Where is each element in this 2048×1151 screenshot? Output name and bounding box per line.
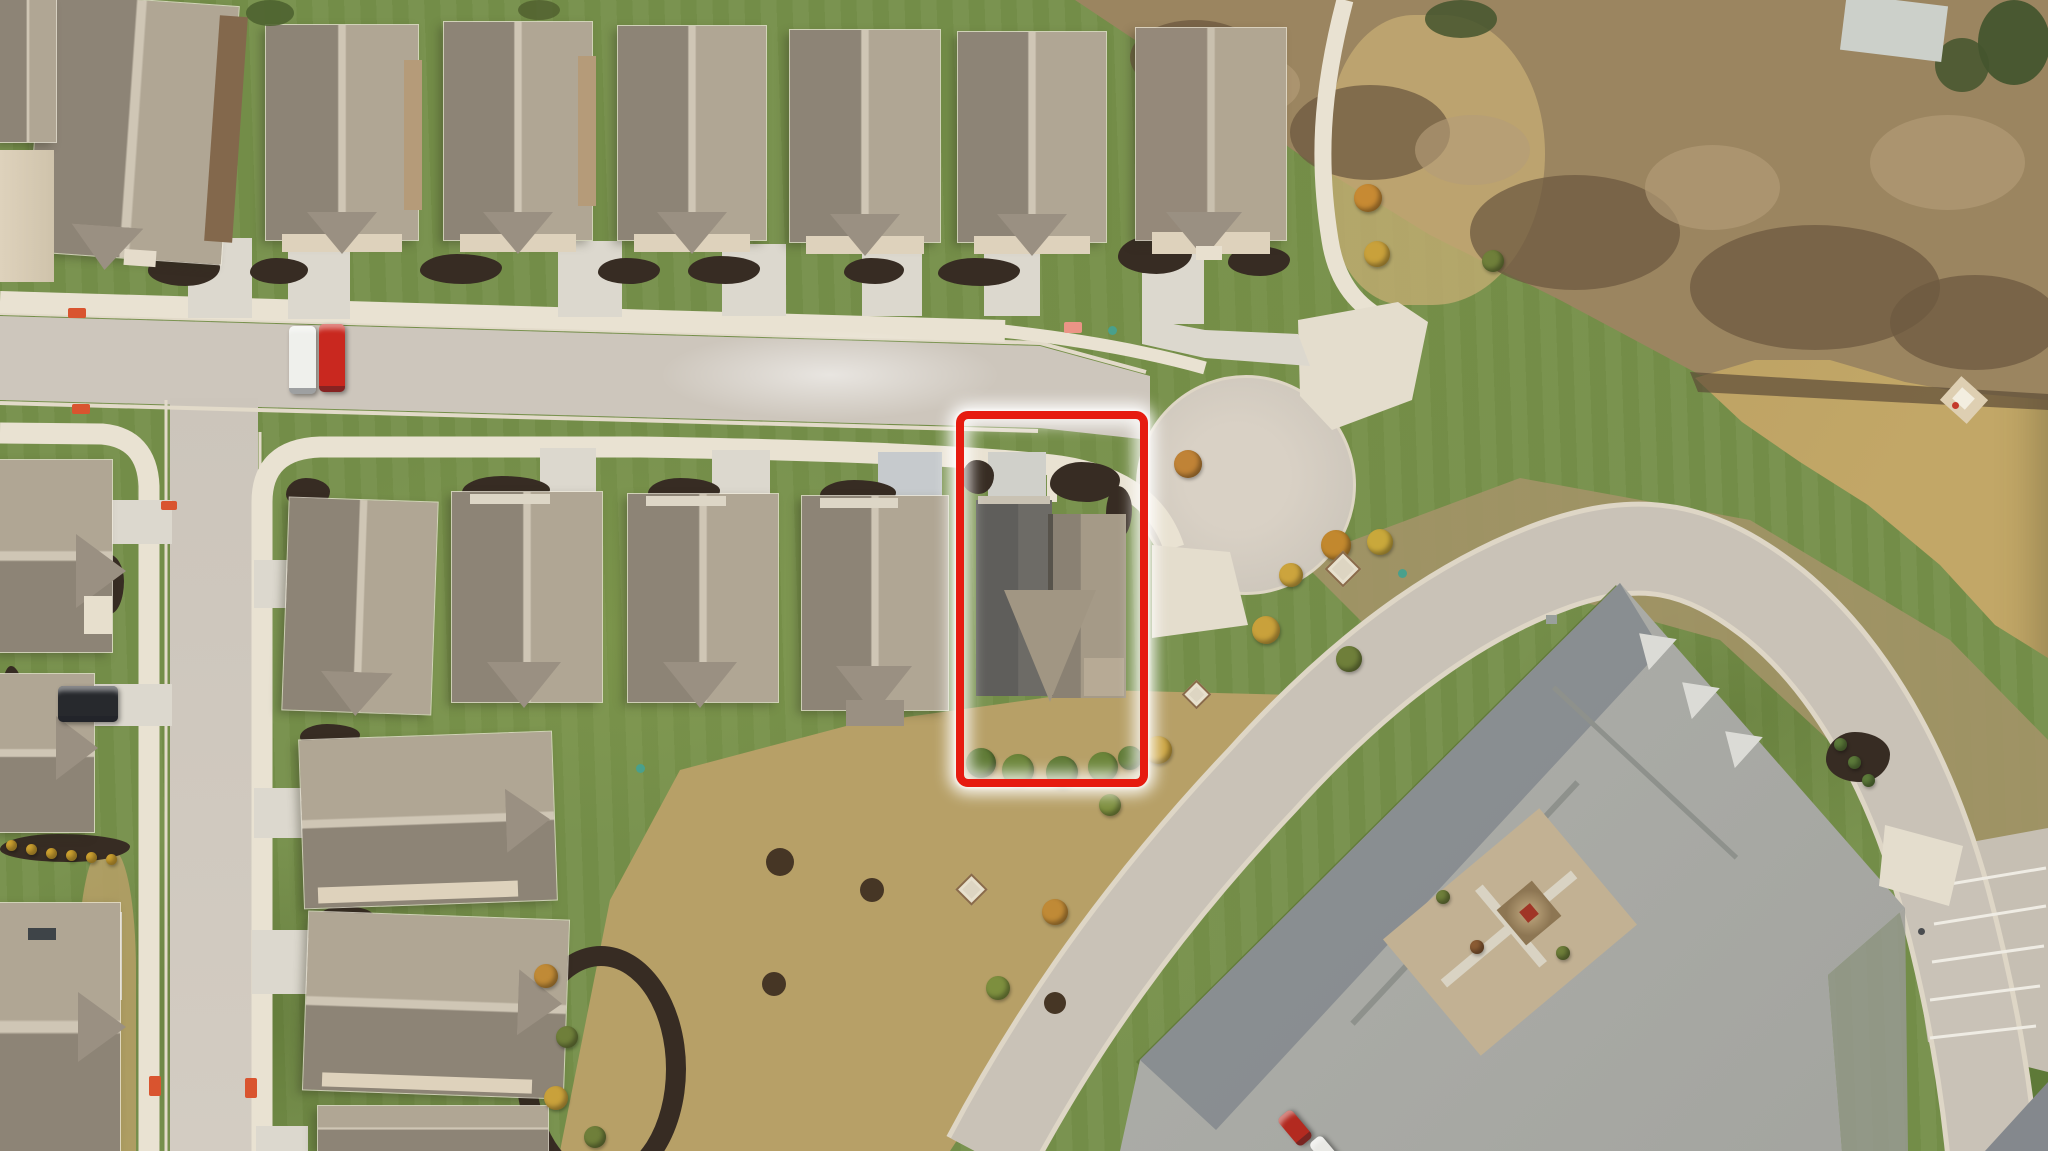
parked-car-white: [289, 326, 316, 394]
house-porch: [84, 596, 112, 634]
house-roof: [1136, 28, 1286, 240]
shrub: [1336, 646, 1362, 672]
courtyard-shrub: [1470, 940, 1484, 954]
shrub: [1367, 529, 1393, 555]
utility-box: [1398, 569, 1407, 578]
tree: [518, 0, 560, 20]
flower-shrub: [66, 850, 77, 861]
house-roof-partial: [318, 1106, 548, 1151]
ac-unit: [1546, 615, 1557, 624]
shrub: [1144, 736, 1172, 764]
shrub: [1862, 774, 1875, 787]
shrub: [1099, 794, 1121, 816]
shrub: [544, 1086, 568, 1110]
shrub: [1279, 563, 1303, 587]
shrub: [1482, 250, 1504, 272]
aerial-photo: [0, 0, 2048, 1151]
house-roof-partial: [0, 150, 54, 282]
flower-shrub: [26, 844, 37, 855]
lamp-post: [1918, 928, 1925, 935]
house-wall: [578, 56, 596, 206]
house-roof: [790, 30, 940, 242]
house-extension: [846, 700, 904, 726]
house-roof: [618, 26, 766, 240]
house-wall: [404, 60, 422, 210]
garage-face: [820, 498, 898, 508]
flower-shrub: [86, 852, 97, 863]
shrub: [556, 1026, 578, 1048]
courtyard-shrub: [1556, 946, 1570, 960]
house-roof: [266, 25, 418, 240]
parked-truck-dark: [58, 686, 118, 722]
utility-box: [636, 764, 645, 773]
curb-marker: [245, 1078, 257, 1098]
curb-marker: [161, 501, 177, 510]
shrub: [1848, 756, 1861, 769]
shrub: [1174, 450, 1202, 478]
shrub: [1252, 616, 1280, 644]
house-porch: [1196, 246, 1222, 260]
house-roof: [958, 32, 1106, 242]
shrub: [1834, 738, 1847, 751]
mulch-ring: [766, 848, 794, 876]
house-roof-partial: [0, 0, 56, 142]
shrub: [1042, 899, 1068, 925]
curb-marker: [1064, 322, 1082, 333]
curb-marker: [149, 1076, 161, 1096]
garage-face: [646, 496, 726, 506]
tree: [246, 0, 294, 26]
shrub: [584, 1126, 606, 1148]
garage-face: [470, 494, 550, 504]
courtyard-shrub: [1436, 890, 1450, 904]
flower-shrub: [46, 848, 57, 859]
shrub: [1354, 184, 1382, 212]
mulch-ring: [860, 878, 884, 902]
flower-shrub: [6, 840, 17, 851]
shrub: [986, 976, 1010, 1000]
utility-pad: [1182, 680, 1212, 710]
utility-box: [1108, 326, 1117, 335]
house-porch: [123, 249, 156, 267]
house-roof: [444, 22, 592, 240]
roof-vents: [28, 928, 56, 940]
highlight-glow-streak: [660, 330, 1000, 420]
curb-marker: [68, 308, 86, 318]
shrub: [1364, 241, 1390, 267]
flower-shrub: [106, 854, 117, 865]
utility-pad: [955, 873, 988, 906]
mulch-ring: [1044, 992, 1066, 1014]
property-boundary-highlight: [956, 411, 1148, 787]
mulch-ring: [762, 972, 786, 996]
parked-car-red: [319, 324, 345, 392]
shrub: [534, 964, 558, 988]
curb-marker: [72, 404, 90, 414]
